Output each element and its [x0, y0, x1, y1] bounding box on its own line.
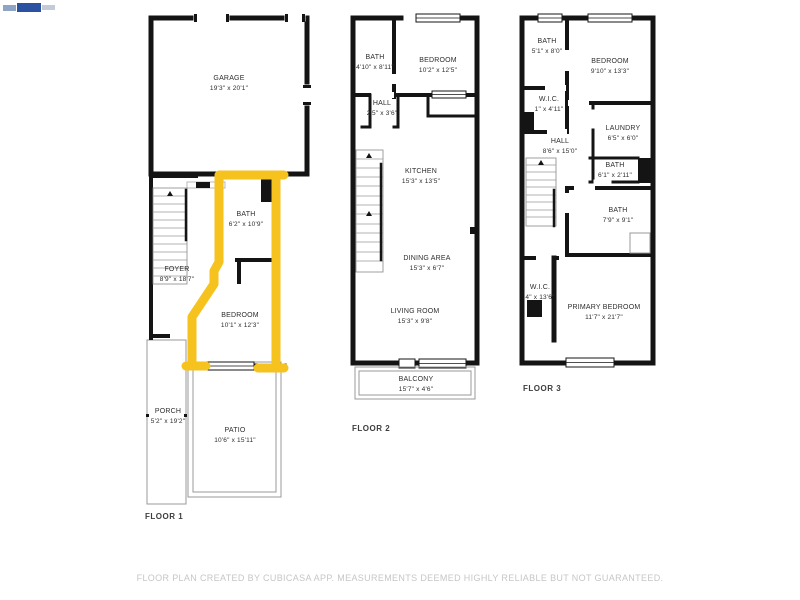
window — [208, 362, 254, 370]
room-label-kitchen: KITCHEN 15'3" x 13'5" — [402, 167, 440, 186]
room-name: PRIMARY BEDROOM — [568, 303, 641, 313]
window — [407, 14, 460, 22]
room-dims: 10'1" x 12'3" — [221, 321, 259, 330]
room-dims: 6'5" x 6'0" — [606, 134, 641, 143]
fixture — [527, 300, 542, 317]
window — [566, 358, 614, 367]
room-dims: 7'9" x 9'1" — [603, 216, 634, 225]
room-dims: 9'10" x 13'3" — [591, 67, 629, 76]
room-name: BALCONY — [399, 375, 434, 385]
room-dims: 15'3" x 9'8" — [391, 317, 440, 326]
fixture — [261, 178, 273, 202]
room-dims: 6'1" x 2'11" — [598, 171, 632, 180]
room-name: BATH — [356, 53, 394, 63]
room-dims: 15'3" x 13'5" — [402, 177, 440, 186]
room-name: BEDROOM — [221, 311, 259, 321]
room-label-bath-f3b: BATH 6'1" x 2'11" — [598, 161, 632, 180]
room-dims: 8'9" x 18'7" — [160, 275, 194, 284]
room-label-bedroom-f1: BEDROOM 10'1" x 12'3" — [221, 311, 259, 330]
floor-plan-canvas: GARAGE 19'3" x 20'1" BATH 6'2" x 10'9" F… — [0, 0, 800, 600]
room-label-hall-f2: HALL 2'5" x 3'6" — [367, 99, 398, 118]
room-dims: 5'2" x 19'2" — [151, 417, 185, 426]
room-name: W.I.C. — [535, 95, 564, 105]
room-dims: 1" x 4'11" — [535, 105, 564, 114]
room-dims: 4" x 13'6" — [525, 293, 554, 302]
room-label-living-room: LIVING ROOM 15'3" x 9'8" — [391, 307, 440, 326]
room-dims: 15'7" x 4'6" — [399, 385, 434, 394]
room-name: LAUNDRY — [606, 124, 641, 134]
room-dims: 8'6" x 15'0" — [543, 147, 577, 156]
fixture — [522, 112, 534, 134]
room-name: W.I.C. — [525, 283, 554, 293]
watermark-logo — [3, 3, 55, 12]
room-label-patio: PATIO 10'6" x 15'11" — [214, 426, 256, 445]
garage-door-opening — [194, 14, 229, 22]
room-label-bedroom-f3: BEDROOM 9'10" x 13'3" — [591, 57, 629, 76]
room-dims: 10'2" x 12'5" — [419, 66, 457, 75]
room-name: KITCHEN — [402, 167, 440, 177]
room-name: BATH — [598, 161, 632, 171]
room-label-garage: GARAGE 19'3" x 20'1" — [210, 74, 248, 93]
garage-walls — [151, 18, 307, 174]
room-name: BEDROOM — [591, 57, 629, 67]
room-dims: 4'10" x 8'11" — [356, 63, 394, 72]
disclaimer-text: FLOOR PLAN CREATED BY CUBICASA APP. MEAS… — [0, 573, 800, 583]
room-dims: 19'3" x 20'1" — [210, 84, 248, 93]
room-label-balcony: BALCONY 15'7" x 4'6" — [399, 375, 434, 394]
room-name: BATH — [532, 37, 563, 47]
room-label-porch: PORCH 5'2" x 19'2" — [151, 407, 185, 426]
staircase — [356, 150, 383, 272]
room-name: PATIO — [214, 426, 256, 436]
room-label-bedroom-f2: BEDROOM 10'2" x 12'5" — [419, 56, 457, 75]
room-label-wic-f3a: W.I.C. 1" x 4'11" — [535, 95, 564, 114]
closet-slider — [432, 91, 466, 98]
floor-label-1: FLOOR 1 — [145, 512, 183, 521]
room-label-laundry: LAUNDRY 6'5" x 6'0" — [606, 124, 641, 143]
room-name: BEDROOM — [419, 56, 457, 66]
room-label-primary-bedroom: PRIMARY BEDROOM 11'7" x 21'7" — [568, 303, 641, 322]
staircase — [526, 158, 556, 226]
room-name: HALL — [543, 137, 577, 147]
room-label-bath-f3c: BATH 7'9" x 9'1" — [603, 206, 634, 225]
floor-plan-drawing — [0, 0, 800, 600]
room-name: FOYER — [160, 265, 194, 275]
room-dims: 15'3" x 6'7" — [403, 264, 450, 273]
room-label-bath-f1: BATH 6'2" x 10'9" — [229, 210, 263, 229]
room-dims: 11'7" x 21'7" — [568, 313, 641, 322]
room-name: LIVING ROOM — [391, 307, 440, 317]
floor-label-3: FLOOR 3 — [523, 384, 561, 393]
room-label-dining-area: DINING AREA 15'3" x 6'7" — [403, 254, 450, 273]
room-dims: 6'2" x 10'9" — [229, 220, 263, 229]
room-name: BATH — [229, 210, 263, 220]
room-name: BATH — [603, 206, 634, 216]
room-name: PORCH — [151, 407, 185, 417]
highlighted-walls — [186, 175, 284, 368]
room-name: HALL — [367, 99, 398, 109]
room-dims: 10'6" x 15'11" — [214, 436, 256, 445]
room-label-bath-f3a: BATH 5'1" x 8'0" — [532, 37, 563, 56]
room-label-foyer: FOYER 8'9" x 18'7" — [160, 265, 194, 284]
room-dims: 5'1" x 8'0" — [532, 47, 563, 56]
room-name: GARAGE — [210, 74, 248, 84]
room-label-wic-f3b: W.I.C. 4" x 13'6" — [525, 283, 554, 302]
room-name: DINING AREA — [403, 254, 450, 264]
floor-2-plan — [353, 14, 479, 399]
fixture — [638, 158, 653, 183]
room-dims: 2'5" x 3'6" — [367, 109, 398, 118]
room-label-bath-f2: BATH 4'10" x 8'11" — [356, 53, 394, 72]
floor-label-2: FLOOR 2 — [352, 424, 390, 433]
room-label-hall-f3: HALL 8'6" x 15'0" — [543, 137, 577, 156]
